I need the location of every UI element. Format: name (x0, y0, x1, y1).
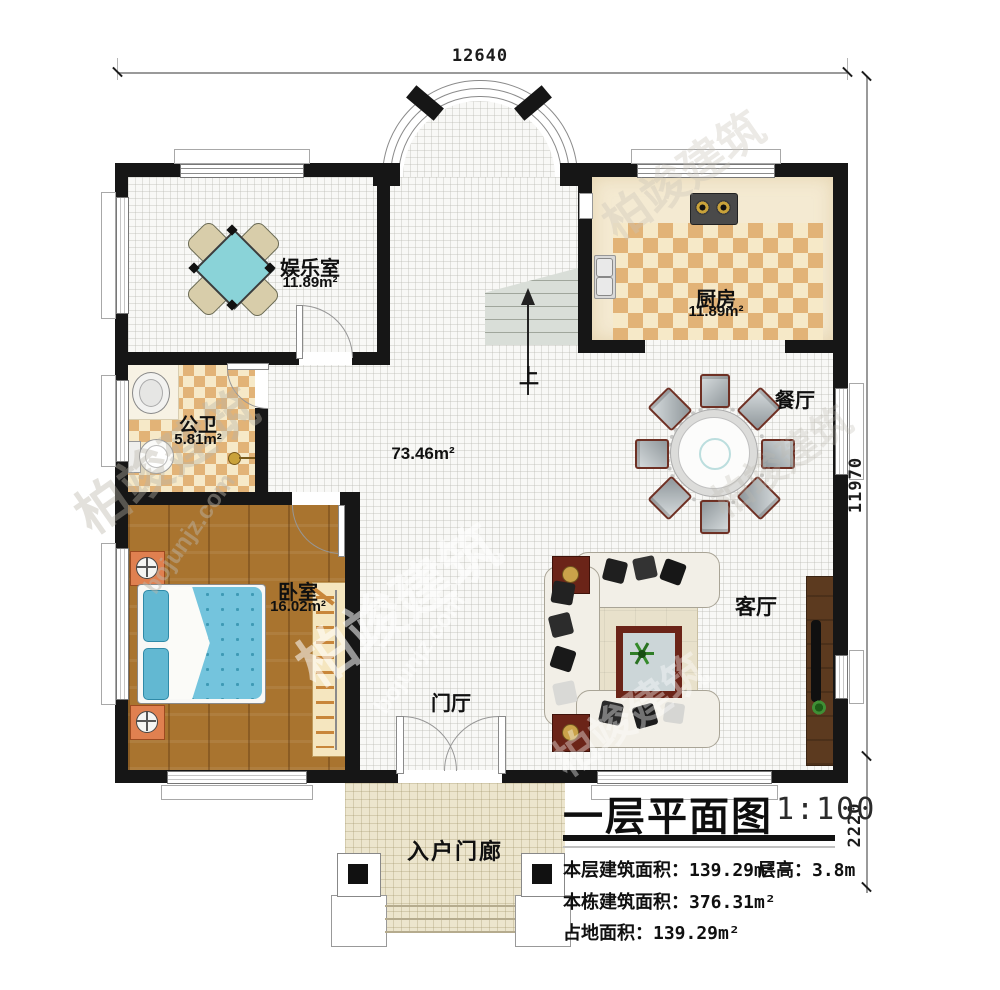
side-table-medallion (562, 566, 579, 583)
stat-label: 占地面积： (563, 923, 653, 943)
floor-height-value: 3.8m (812, 860, 855, 881)
stat-row-2: 本栋建筑面积：376.31m² (563, 888, 776, 914)
bedroom-door-opening (292, 492, 340, 505)
window-living-right (835, 655, 848, 699)
room-label-foyer: 门厅 (421, 687, 481, 716)
tv-plant-decor (812, 700, 826, 715)
dining-table-center (699, 438, 731, 470)
porch-column-core (532, 864, 552, 884)
stat-label: 本层建筑面积： (563, 860, 689, 880)
window-sill (101, 375, 116, 467)
dim-line-right-main (866, 76, 868, 756)
wall-entertainment-right (377, 177, 390, 352)
bathroom-sink-bowl (139, 379, 163, 407)
wall-kitchen-bottom-left (578, 340, 645, 353)
dim-ext-line (847, 58, 848, 80)
window-sill (849, 650, 864, 704)
window-entertainment-top (180, 164, 304, 178)
porch-step-line (385, 905, 515, 907)
entertainment-door-leaf (296, 305, 303, 359)
title-underline-thick (563, 835, 835, 841)
room-name: 客厅 (735, 596, 777, 619)
window-entertainment-left (116, 197, 129, 314)
room-area-bathroom: 5.81m² (158, 431, 238, 448)
stat-label: 本栋建筑面积： (563, 892, 689, 912)
floor-height-row: 层高：3.8m (758, 856, 855, 882)
toilet-seat (145, 445, 168, 468)
sofa-pillow (550, 580, 575, 605)
nightstand-lamp-cross (146, 712, 148, 731)
room-area-kitchen: 11.89m² (666, 303, 766, 320)
window-bathroom-left (116, 380, 129, 462)
kitchen-floor (613, 223, 823, 340)
porch-column-base (331, 895, 387, 947)
dining-chair (635, 439, 669, 469)
nightstand-lamp-cross (137, 566, 156, 568)
room-label-porch: 入户门廊 (403, 834, 507, 866)
room-label-dining: 餐厅 (765, 384, 825, 413)
floor-plan-canvas: 12640 11970 2220 柏竣建筑 bojunjz.com 柏竣建筑 b… (0, 0, 1000, 990)
stove-burner (716, 200, 731, 215)
porch-column-core (348, 864, 368, 884)
plan-title: 一层平面图 (563, 784, 773, 842)
window-sill (161, 785, 313, 800)
dim-ext-line (117, 58, 118, 80)
dim-line-top (118, 72, 848, 74)
side-table-medallion (562, 724, 579, 741)
sofa-pillow (598, 700, 624, 726)
sofa-pillow (632, 555, 658, 581)
dining-chair (700, 374, 730, 408)
stairs-direction: 上 (519, 366, 539, 388)
dining-chair (761, 439, 795, 469)
window-sill (631, 149, 781, 164)
dim-label-right: 11970 (846, 445, 866, 525)
nightstand-lamp-cross (137, 720, 156, 722)
plant-pot (638, 650, 646, 658)
room-name: 入户门廊 (407, 839, 503, 864)
room-area: 5.81m² (174, 431, 222, 448)
room-area: 16.02m² (270, 598, 326, 615)
porch-step-line (385, 918, 515, 920)
wall-bottom-foyer-left (360, 770, 398, 783)
window-bedroom-left (116, 548, 129, 700)
entry-door-opening (398, 770, 502, 783)
wall-bedroom-right (345, 505, 360, 770)
nightstand-lamp-cross (146, 558, 148, 577)
title-block: 一层平面图 1:100 本层建筑面积：139.29m² 层高：3.8m 本栋建筑… (558, 782, 858, 982)
room-area: 11.89m² (282, 274, 337, 291)
stove-burner (695, 200, 710, 215)
window-bedroom-bottom (167, 771, 307, 784)
sofa-pillow (663, 702, 686, 725)
hall-area-label: 73.46m² (375, 444, 471, 464)
room-area-bedroom: 16.02m² (255, 598, 341, 615)
window-sill (101, 543, 116, 705)
bathroom-door-leaf (227, 363, 269, 370)
bed-pillow (143, 590, 169, 642)
tv-screen (811, 620, 821, 702)
room-area-entertainment: 11.89m² (260, 274, 360, 291)
stairs-up-arrow-head (521, 288, 535, 305)
bedroom-door-leaf (338, 505, 345, 557)
window-kitchen-top (637, 164, 775, 178)
plan-scale: 1:100 (776, 792, 876, 827)
room-label-living: 客厅 (726, 591, 786, 621)
stat-value: 376.31m² (689, 892, 776, 913)
porch-step-line (385, 931, 515, 933)
entry-door-leaf (498, 716, 506, 774)
sofa-pillow (552, 680, 578, 706)
bed-pillow (143, 648, 169, 700)
kitchen-pass-through (579, 193, 593, 219)
window-sill (174, 149, 310, 164)
stairs-up-label: 上 (515, 360, 543, 389)
kitchen-sink-basin (596, 258, 613, 277)
entry-door-leaf (396, 716, 404, 774)
room-name: 餐厅 (775, 390, 815, 412)
kitchen-sink-basin (596, 277, 613, 296)
wall-kitchen-bottom-right (785, 340, 848, 353)
drain-pipe (239, 457, 255, 459)
title-underline-thin (563, 846, 835, 848)
stat-value: 139.29m² (653, 923, 740, 944)
room-area: 11.89m² (688, 303, 743, 320)
window-sill (101, 192, 116, 319)
dining-chair (700, 500, 730, 534)
stat-row-1: 本层建筑面积：139.29m² (563, 856, 776, 882)
room-name: 门厅 (431, 693, 471, 715)
hall-area: 73.46m² (391, 444, 454, 463)
stat-row-3: 占地面积：139.29m² (563, 919, 740, 945)
floor-height-label: 层高： (758, 860, 812, 880)
dim-label-top: 12640 (430, 46, 530, 66)
wardrobe-hangers (316, 596, 334, 748)
